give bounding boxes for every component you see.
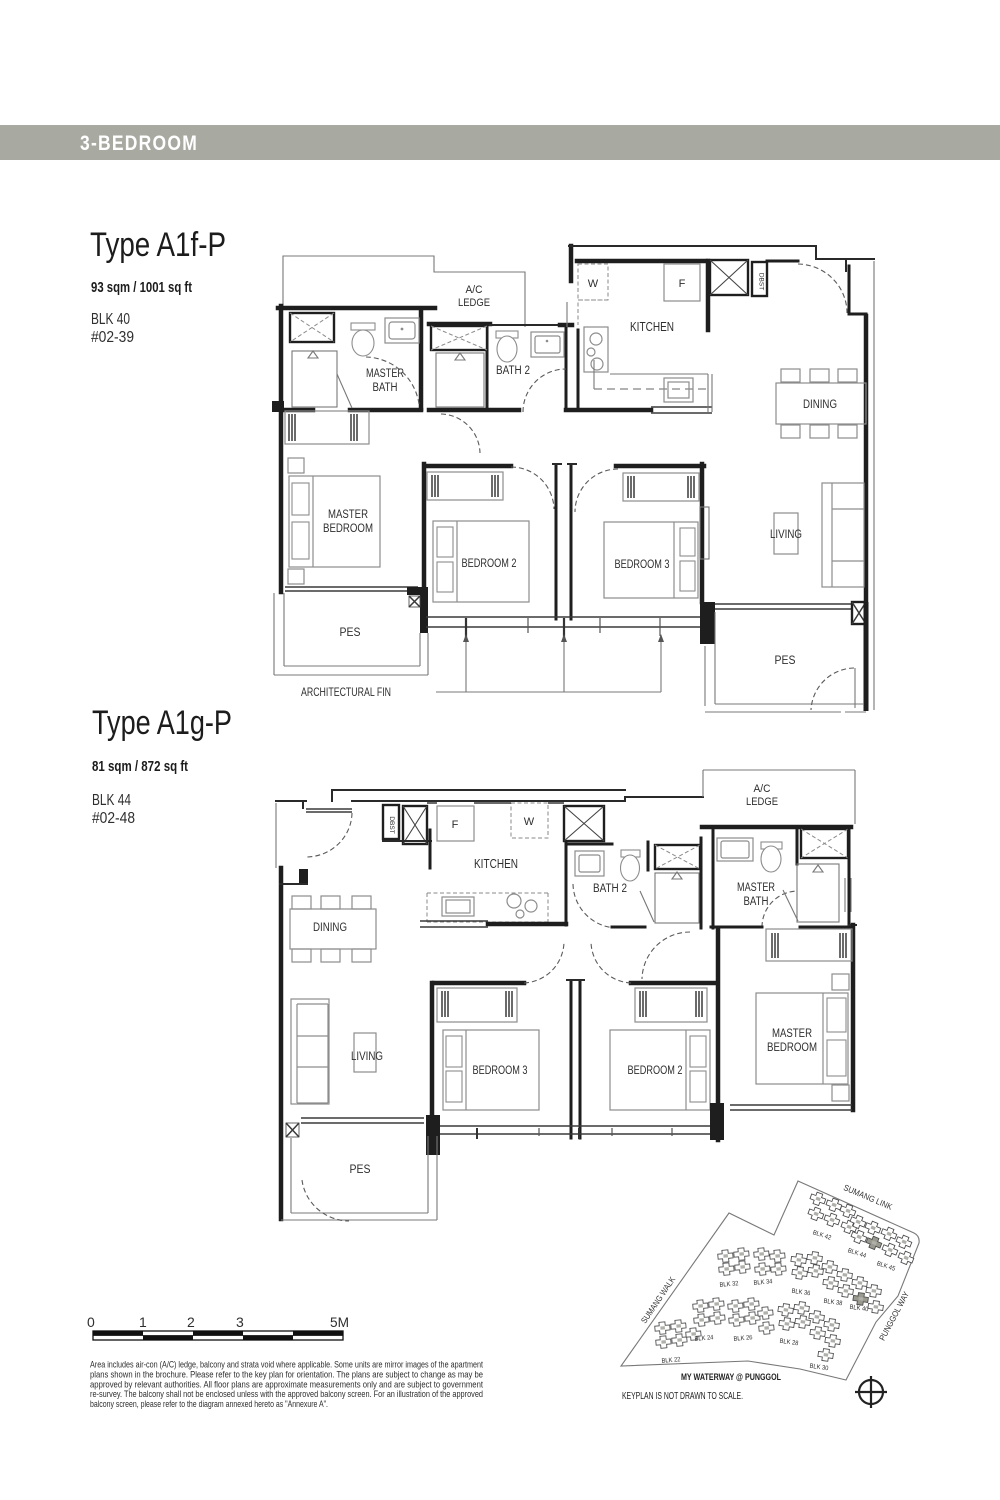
svg-text:W: W [524,816,535,828]
svg-text:LEDGE: LEDGE [746,796,778,808]
svg-text:DBST: DBST [758,273,765,290]
svg-text:KITCHEN: KITCHEN [474,857,518,871]
svg-text:BLK 42: BLK 42 [812,1229,833,1242]
svg-text:DINING: DINING [313,920,347,934]
svg-text:BLK 30: BLK 30 [809,1363,829,1373]
svg-text:LIVING: LIVING [770,527,802,541]
svg-text:plans shown in the brochure. P: plans shown in the brochure. Please refe… [90,1369,483,1379]
svg-text:A/C: A/C [754,783,771,795]
svg-text:2: 2 [187,1314,195,1330]
svg-text:balcony screen, please refer t: balcony screen, please refer to the diag… [90,1399,328,1409]
svg-text:Type A1g-P: Type A1g-P [92,704,232,742]
svg-text:BLK 38: BLK 38 [823,1298,843,1308]
svg-text:BEDROOM 2: BEDROOM 2 [628,1065,683,1077]
svg-text:W: W [588,278,599,290]
svg-text:F: F [452,819,459,831]
svg-text:3: 3 [236,1314,244,1330]
svg-text:BLK 26: BLK 26 [733,1334,753,1343]
svg-text:BEDROOM 2: BEDROOM 2 [462,558,517,570]
svg-text:BLK 44: BLK 44 [847,1247,868,1260]
svg-text:F: F [679,278,686,290]
svg-text:BATH: BATH [373,382,398,394]
svg-text:PES: PES [775,653,796,667]
svg-text:MY WATERWAY @ PUNGGOL: MY WATERWAY @ PUNGGOL [681,1372,781,1383]
svg-text:Type A1f-P: Type A1f-P [90,226,226,264]
svg-text:approved by relevant authoriti: approved by relevant authorities. All fl… [90,1379,483,1389]
svg-text:5M: 5M [330,1314,349,1330]
svg-text:MASTER: MASTER [772,1028,812,1040]
svg-text:BLK 28: BLK 28 [779,1338,799,1348]
svg-text:DBST: DBST [388,816,395,833]
svg-text:0: 0 [87,1314,95,1330]
svg-text:BEDROOM: BEDROOM [323,523,373,535]
svg-text:BEDROOM: BEDROOM [767,1042,817,1054]
svg-text:MASTER: MASTER [328,509,368,521]
svg-text:A/C: A/C [466,284,483,296]
svg-text:PUNGGOL WAY: PUNGGOL WAY [877,1290,911,1343]
svg-text:BLK 34: BLK 34 [753,1278,773,1287]
svg-text:MASTER: MASTER [366,368,404,380]
svg-text:BEDROOM 3: BEDROOM 3 [615,559,670,571]
svg-text:81 sqm / 872 sq ft: 81 sqm / 872 sq ft [92,759,188,775]
svg-text:BLK 40: BLK 40 [849,1304,869,1314]
svg-text:SUMANG WALK: SUMANG WALK [639,1275,678,1326]
svg-text:BATH: BATH [744,896,769,908]
svg-text:LIVING: LIVING [351,1049,383,1063]
svg-text:93 sqm / 1001 sq ft: 93 sqm / 1001 sq ft [91,280,192,296]
svg-text:BLK 24: BLK 24 [694,1334,714,1343]
svg-text:BLK 44: BLK 44 [92,792,131,809]
svg-text:BLK 32: BLK 32 [719,1280,739,1289]
svg-text:#02-48: #02-48 [92,810,135,827]
svg-text:3-BEDROOM: 3-BEDROOM [80,132,198,155]
svg-text:KEYPLAN IS NOT DRAWN TO SCALE.: KEYPLAN IS NOT DRAWN TO SCALE. [622,1391,743,1402]
svg-text:BLK 40: BLK 40 [91,311,130,328]
svg-text:re-survey. The balcony shall n: re-survey. The balcony shall not be encl… [90,1389,483,1399]
svg-text:BEDROOM 3: BEDROOM 3 [473,1065,528,1077]
svg-text:1: 1 [139,1314,147,1330]
svg-text:BLK 45: BLK 45 [876,1260,897,1273]
svg-text:DINING: DINING [803,397,837,411]
svg-text:ARCHITECTURAL FIN: ARCHITECTURAL FIN [301,685,391,699]
svg-text:BATH 2: BATH 2 [593,883,627,895]
svg-text:BATH 2: BATH 2 [496,365,530,377]
svg-text:PES: PES [350,1162,371,1176]
svg-text:BLK 36: BLK 36 [791,1288,811,1298]
svg-text:KITCHEN: KITCHEN [630,320,674,334]
svg-text:#02-39: #02-39 [91,329,134,346]
svg-text:LEDGE: LEDGE [458,297,490,309]
svg-text:PES: PES [340,625,361,639]
svg-text:Area includes air-con (A/C) le: Area includes air-con (A/C) ledge, balco… [90,1360,483,1370]
svg-text:MASTER: MASTER [737,882,775,894]
